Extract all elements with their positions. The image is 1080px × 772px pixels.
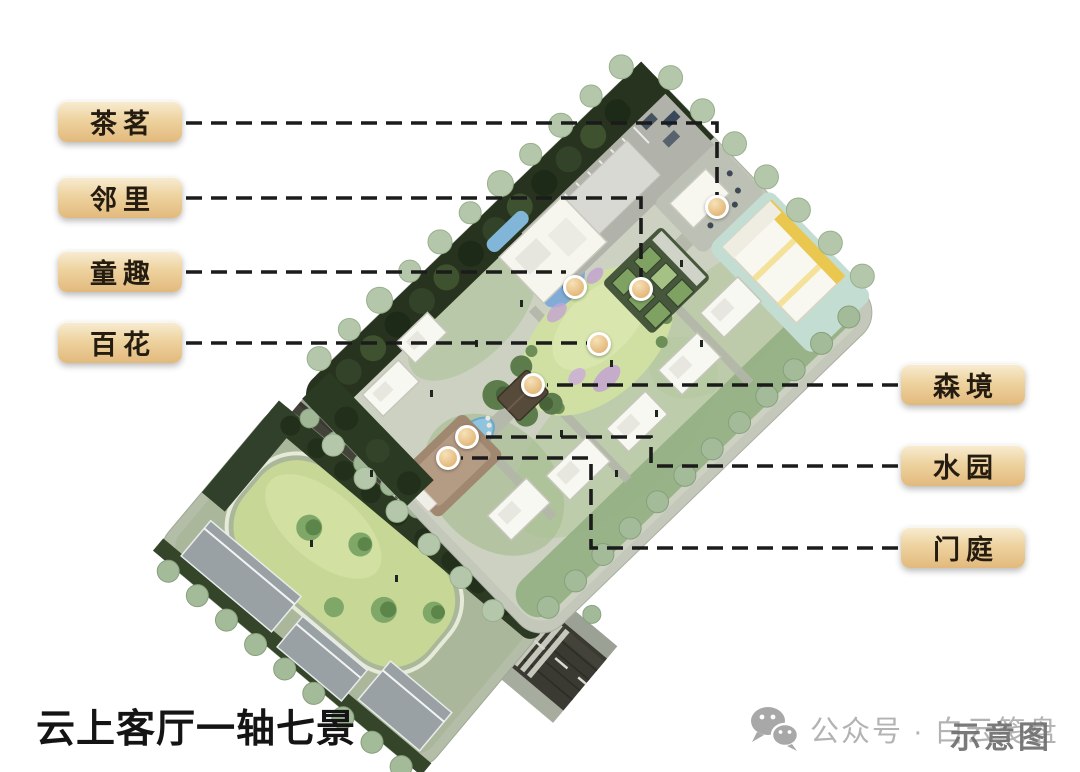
leader-line-tea-court xyxy=(186,123,717,195)
scene-label-forest-court: 森境 xyxy=(901,364,1025,405)
scene-marker-flower-lawn xyxy=(589,334,610,355)
scene-label-tea-court: 茶茗 xyxy=(58,101,182,142)
scene-marker-forest-court xyxy=(523,375,544,396)
leader-line-neighborhood-garden xyxy=(186,198,641,277)
scene-marker-tea-court xyxy=(707,197,728,218)
plan-title: 云上客厅一轴七景 xyxy=(36,698,356,754)
scene-label-water-garden: 水园 xyxy=(901,445,1025,486)
scene-marker-neighborhood-garden xyxy=(631,279,652,300)
page-canvas: 茶茗邻里童趣百花森境水园门庭 云上客厅一轴七景 公众号 · 白云笺盘 示意图 xyxy=(0,0,1080,772)
scene-label-neighborhood-garden: 邻里 xyxy=(58,177,182,218)
scene-marker-water-garden xyxy=(457,427,478,448)
scene-marker-entry-court xyxy=(438,448,459,469)
leader-line-entry-court xyxy=(461,458,898,548)
wechat-icon xyxy=(748,704,800,754)
scene-label-flower-lawn: 百花 xyxy=(58,322,182,363)
scene-label-kids-play: 童趣 xyxy=(58,251,182,292)
scene-marker-kids-play xyxy=(565,277,586,298)
scene-markers xyxy=(438,197,728,469)
leader-line-water-garden xyxy=(480,437,898,466)
schematic-stamp: 示意图 xyxy=(950,712,1052,757)
leader-lines xyxy=(186,123,898,548)
scene-label-entry-court: 门庭 xyxy=(901,527,1025,568)
